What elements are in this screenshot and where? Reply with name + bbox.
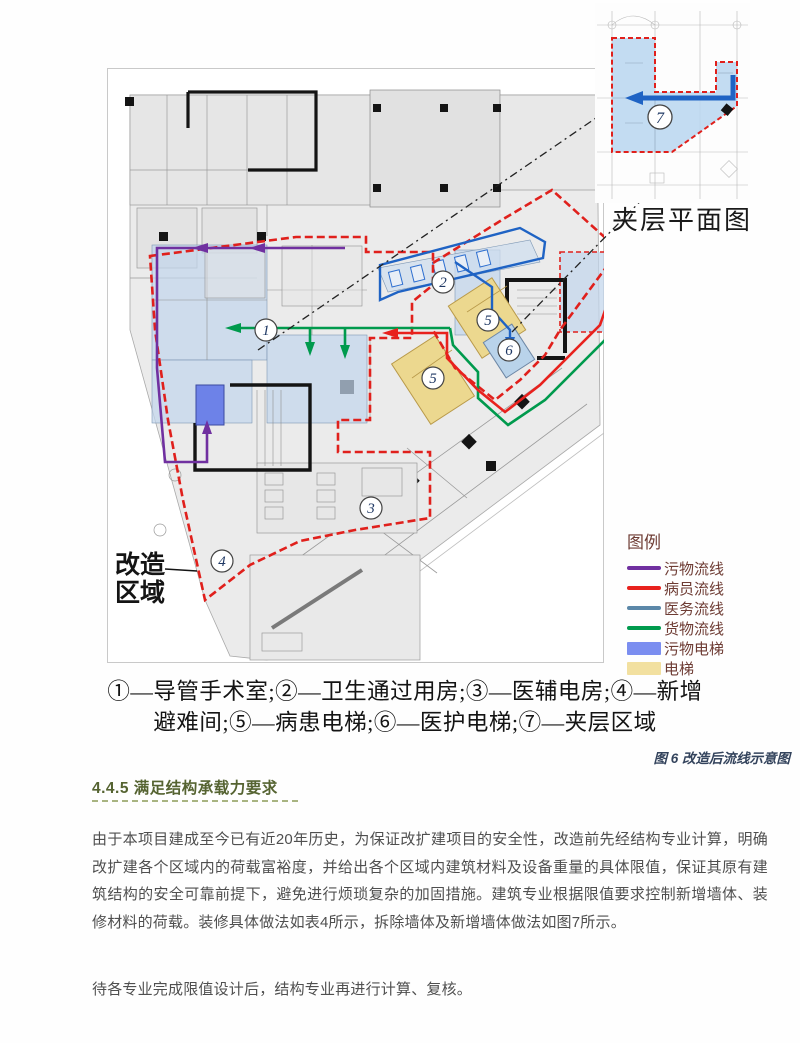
- marker-4: 4: [218, 554, 226, 570]
- legend-item-patient-flow: 病员流线: [627, 578, 797, 598]
- heading-underline: [92, 800, 298, 802]
- waste-flow-swatch: [627, 566, 661, 570]
- legend: 图例 污物流线 病员流线 医务流线 货物流线 污物电梯 电梯: [627, 528, 797, 678]
- legend-item-waste-flow: 污物流线: [627, 558, 797, 578]
- marker-1: 1: [262, 323, 270, 339]
- marker-3: 3: [366, 501, 375, 517]
- legend-item-goods-flow: 货物流线: [627, 618, 797, 638]
- marker-6: 6: [505, 343, 513, 359]
- body-paragraph-1: 由于本项目建成至今已有近20年历史，为保证改扩建项目的安全性，改造前先经结构专业…: [92, 826, 768, 936]
- marker-7: 7: [656, 110, 665, 127]
- svg-text:改造: 改造: [115, 550, 165, 579]
- figure-key-caption: ①—导管手术室;②—卫生通过用房;③—医辅电房;④—新增 避难间;⑤—病患电梯;…: [55, 676, 755, 738]
- legend-item-waste-elevator: 污物电梯: [627, 638, 797, 658]
- waste-elevator-box: [196, 385, 224, 425]
- patient-flow-swatch: [627, 586, 661, 590]
- section-heading: 4.4.5 满足结构承载力要求: [92, 776, 278, 798]
- marker-5-right: 5: [484, 313, 492, 329]
- waste-elevator-swatch: [627, 642, 661, 655]
- marker-5-left: 5: [429, 371, 437, 387]
- svg-text:区域: 区域: [115, 579, 165, 607]
- body-paragraph-2: 待各专业完成限值设计后，结构专业再进行计算、复核。: [92, 976, 768, 1004]
- medical-flow-swatch: [627, 606, 661, 610]
- mezzanine-inset-plan: 7: [595, 3, 750, 203]
- legend-item-medical-flow: 医务流线: [627, 598, 797, 618]
- legend-item-elevator: 电梯: [627, 658, 797, 678]
- document-page: 1 2 3 4 5 5 6 改造 区域: [0, 0, 800, 1043]
- figure-number-caption: 图 6 改造后流线示意图: [440, 747, 790, 767]
- inset-caption: 夹层平面图: [612, 200, 772, 237]
- figure-key-line2: 避难间;⑤—病患电梯;⑥—医护电梯;⑦—夹层区域: [55, 707, 755, 738]
- main-floor-plan: 1 2 3 4 5 5 6 改造 区域: [107, 68, 604, 663]
- figure-key-line1: ①—导管手术室;②—卫生通过用房;③—医辅电房;④—新增: [55, 676, 755, 707]
- goods-flow-swatch: [627, 626, 661, 630]
- elevator-swatch: [627, 662, 661, 675]
- marker-2: 2: [439, 275, 447, 291]
- legend-title: 图例: [627, 528, 797, 553]
